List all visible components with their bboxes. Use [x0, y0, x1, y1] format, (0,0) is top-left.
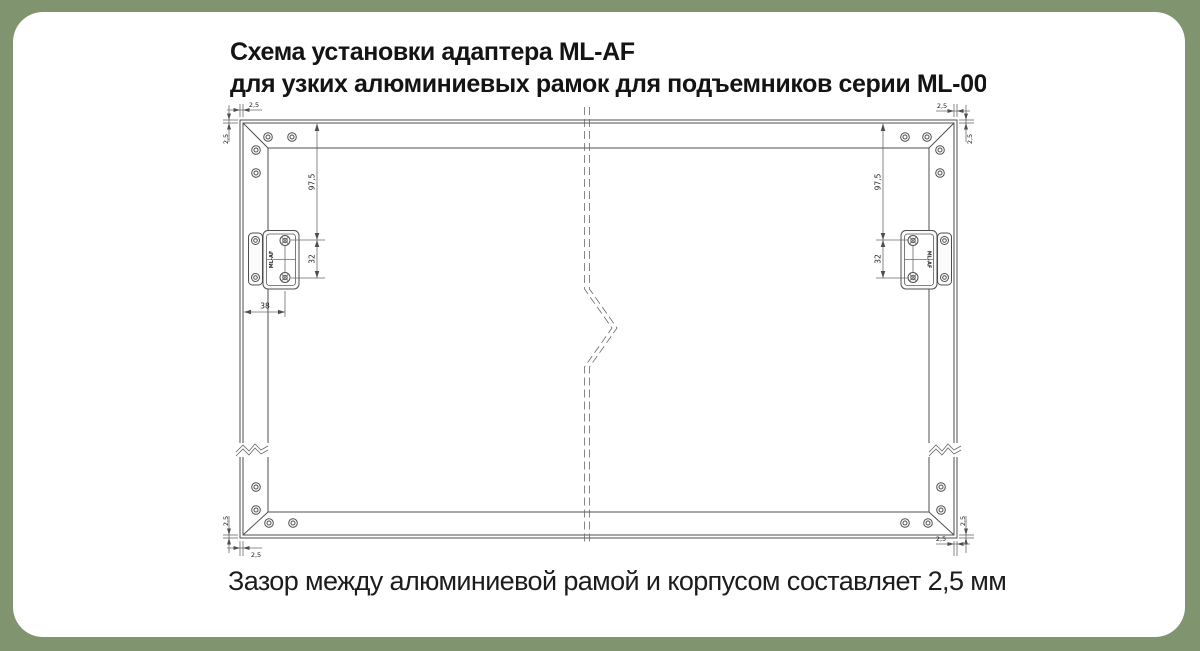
left-adapter-label: ML-AF: [269, 251, 275, 269]
left-adapter: ML-AF: [249, 231, 300, 290]
svg-text:2,5: 2,5: [251, 551, 261, 559]
svg-text:2,5: 2,5: [966, 134, 974, 144]
dim-gap-top-left-horizontal: 2,5: [227, 101, 262, 117]
svg-text:2,5: 2,5: [959, 516, 967, 526]
svg-text:97,5: 97,5: [874, 173, 883, 190]
right-adapter: ML-AF: [901, 231, 952, 290]
svg-text:2,5: 2,5: [222, 134, 230, 144]
svg-text:32: 32: [874, 254, 883, 264]
svg-text:32: 32: [308, 254, 317, 264]
svg-text:2,5: 2,5: [249, 101, 259, 109]
installation-diagram: ML-AF ML-AF 97,5 32: [0, 0, 1200, 651]
cabinet-body-outline: [240, 120, 957, 538]
corner-miter-lines: [243, 123, 954, 535]
right-rail-break-icon: [927, 443, 961, 457]
frame-inner-outline: [268, 148, 929, 512]
gap-note-caption: Зазор между алюминиевой рамой и корпусом…: [228, 566, 1168, 597]
dim-left-top-offset: 97,5: [291, 124, 325, 241]
center-seam-break-line: [585, 107, 618, 545]
page-background: { "colors": { "background": "#80946F", "…: [0, 0, 1200, 651]
svg-text:2,5: 2,5: [222, 516, 230, 526]
left-rail-break-icon: [236, 443, 270, 457]
frame-outer-outline: [243, 123, 954, 535]
right-adapter-label: ML-AF: [926, 251, 932, 269]
frame-screw-holes: [252, 133, 946, 528]
dim-gap-bottom-right-vertical: 2,5: [959, 516, 974, 553]
svg-text:2,5: 2,5: [936, 535, 946, 543]
svg-text:2,5: 2,5: [937, 102, 947, 110]
svg-text:97,5: 97,5: [308, 173, 317, 190]
dim-gap-bottom-left-horizontal: 2,5: [227, 541, 262, 559]
dim-left-edge-offset: 38: [244, 291, 285, 317]
svg-text:38: 38: [260, 302, 270, 311]
